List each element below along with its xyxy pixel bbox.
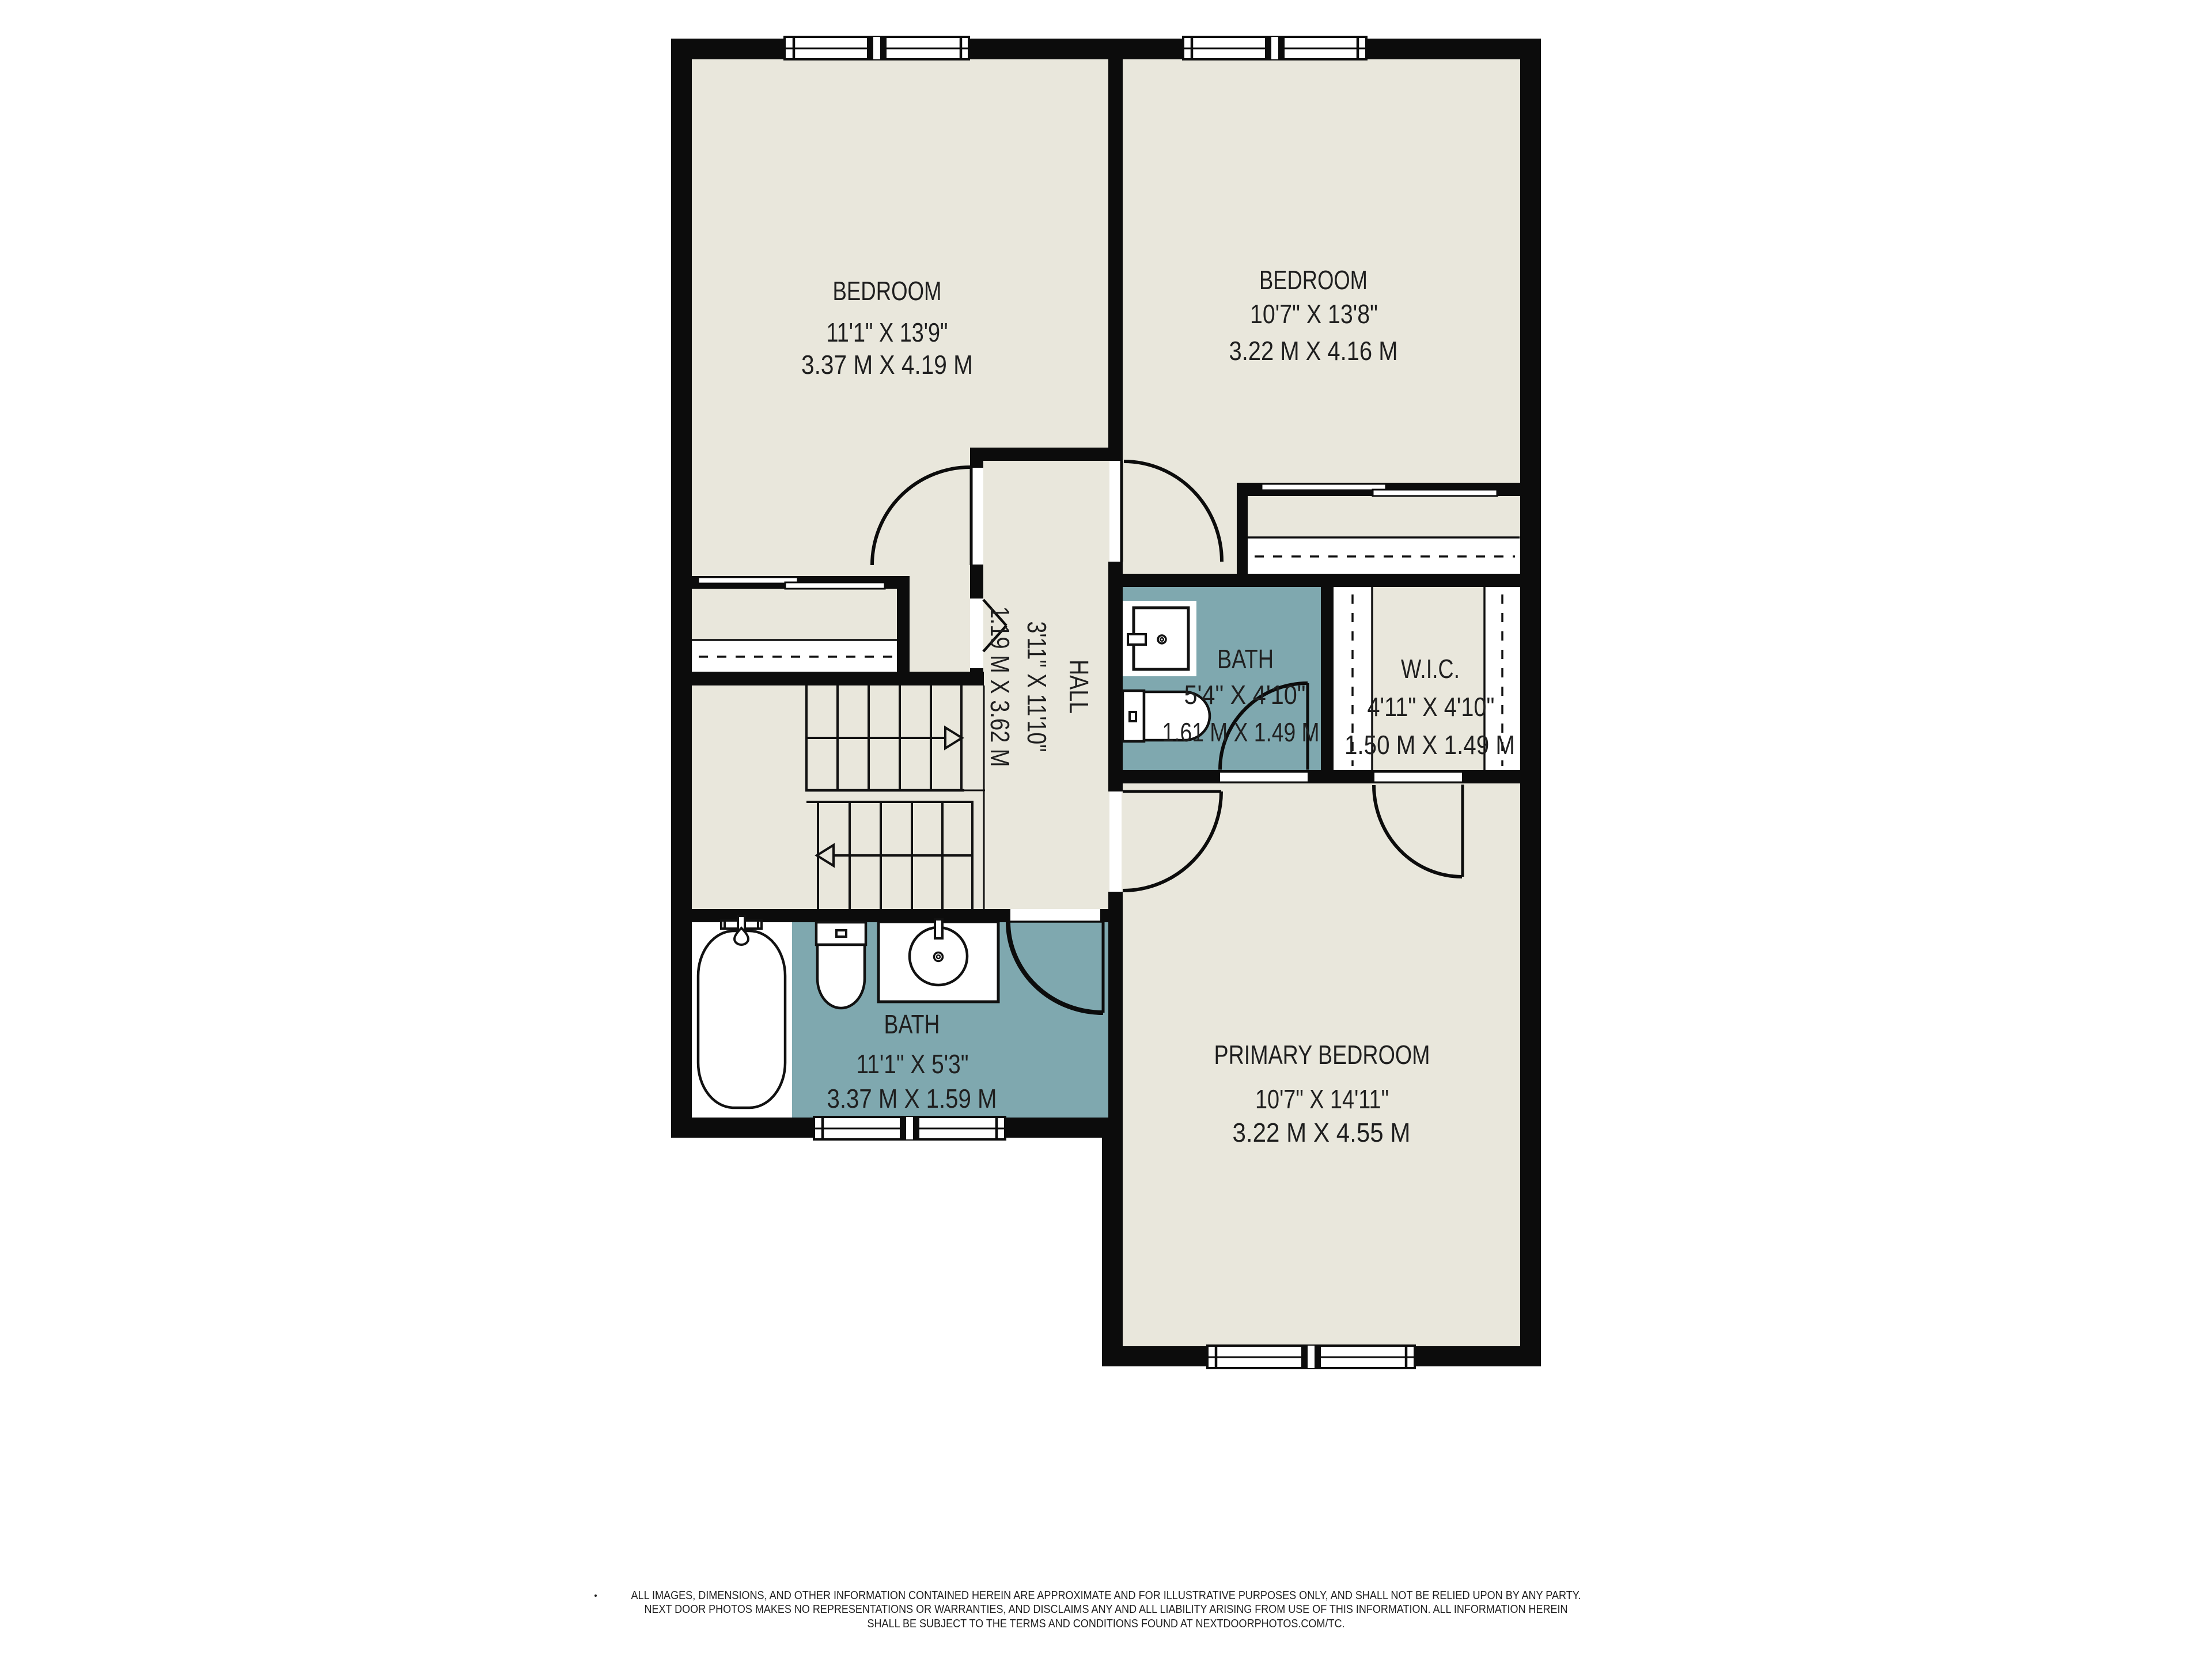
svg-text:3.22 M X 4.16 M: 3.22 M X 4.16 M <box>1229 336 1398 366</box>
svg-text:1.19 M X 3.62 M: 1.19 M X 3.62 M <box>985 607 1015 767</box>
svg-text:1.50 M X 1.49 M: 1.50 M X 1.49 M <box>1344 730 1515 760</box>
svg-text:BEDROOM: BEDROOM <box>1259 265 1368 295</box>
svg-text:BATH: BATH <box>884 1009 940 1039</box>
svg-text:W.I.C.: W.I.C. <box>1401 654 1460 684</box>
svg-text:1.61 M X 1.49 M: 1.61 M X 1.49 M <box>1162 717 1320 747</box>
svg-text:3.22 M X 4.55 M: 3.22 M X 4.55 M <box>1233 1118 1411 1147</box>
svg-text:5'4" X 4'10": 5'4" X 4'10" <box>1184 680 1306 710</box>
svg-text:3.37 M X 1.59 M: 3.37 M X 1.59 M <box>827 1084 997 1113</box>
svg-text:11'1" X 5'3": 11'1" X 5'3" <box>857 1049 969 1079</box>
svg-text:11'1" X 13'9": 11'1" X 13'9" <box>827 317 948 347</box>
svg-text:ALL IMAGES, DIMENSIONS, AND OT: ALL IMAGES, DIMENSIONS, AND OTHER INFORM… <box>631 1589 1581 1602</box>
svg-text:10'7" X 14'11": 10'7" X 14'11" <box>1255 1084 1389 1114</box>
svg-text:3'11" X 11'10": 3'11" X 11'10" <box>1022 622 1052 752</box>
svg-text:BEDROOM: BEDROOM <box>833 276 942 306</box>
svg-text:PRIMARY BEDROOM: PRIMARY BEDROOM <box>1214 1040 1430 1070</box>
svg-text:BATH: BATH <box>1217 644 1274 674</box>
svg-text:HALL: HALL <box>1064 660 1094 714</box>
svg-text:4'11" X 4'10": 4'11" X 4'10" <box>1368 692 1495 722</box>
svg-text:NEXT DOOR PHOTOS MAKES NO REPR: NEXT DOOR PHOTOS MAKES NO REPRESENTATION… <box>645 1603 1568 1616</box>
svg-text:10'7" X 13'8": 10'7" X 13'8" <box>1250 299 1378 329</box>
svg-text:3.37 M X 4.19 M: 3.37 M X 4.19 M <box>801 350 973 380</box>
svg-text:SHALL BE SUBJECT TO THE TERMS: SHALL BE SUBJECT TO THE TERMS AND CONDIT… <box>868 1617 1345 1630</box>
